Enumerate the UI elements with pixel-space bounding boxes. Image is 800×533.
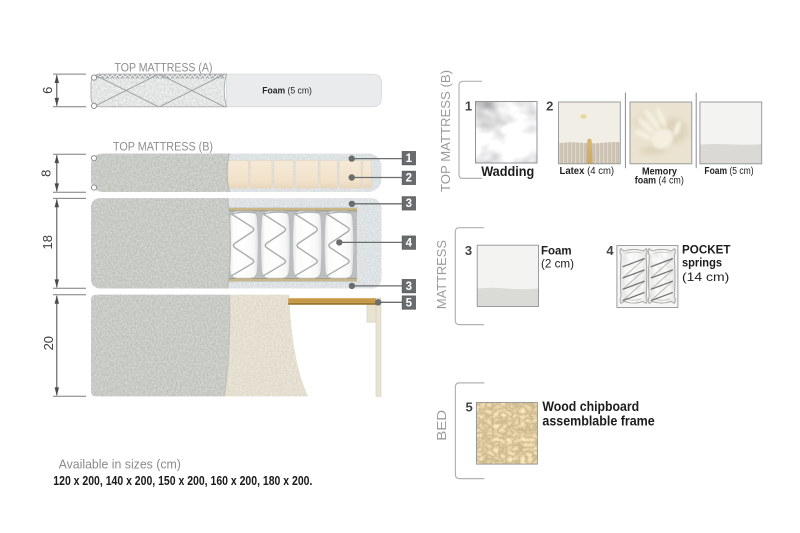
- svg-text:TOP MATTRESS (A): TOP MATTRESS (A): [115, 61, 213, 75]
- svg-text:18: 18: [40, 235, 55, 249]
- svg-text:Foam: Foam: [541, 244, 572, 258]
- svg-text:120 x 200, 140 x 200, 150 x 20: 120 x 200, 140 x 200, 150 x 200, 160 x 2…: [53, 473, 312, 488]
- svg-text:Latex (4 cm): Latex (4 cm): [560, 166, 615, 177]
- svg-text:MATTRESS: MATTRESS: [435, 240, 449, 309]
- svg-text:(2 cm): (2 cm): [541, 256, 574, 270]
- svg-text:3: 3: [406, 198, 412, 210]
- svg-text:8: 8: [38, 170, 53, 177]
- svg-text:6: 6: [40, 87, 55, 94]
- svg-text:4: 4: [606, 243, 614, 258]
- svg-text:Foam (5 cm): Foam (5 cm): [704, 166, 753, 177]
- svg-text:Available in sizes (cm): Available in sizes (cm): [59, 457, 181, 471]
- svg-text:3: 3: [406, 281, 412, 293]
- svg-text:springs: springs: [682, 255, 722, 269]
- svg-text:Wadding: Wadding: [481, 164, 534, 179]
- svg-text:2: 2: [546, 99, 553, 114]
- svg-text:assemblable frame: assemblable frame: [542, 413, 654, 428]
- svg-text:5: 5: [406, 297, 413, 309]
- svg-text:BED: BED: [435, 410, 449, 441]
- svg-text:20: 20: [41, 336, 56, 350]
- svg-text:(14 cm): (14 cm): [682, 270, 729, 284]
- svg-text:2: 2: [406, 173, 412, 185]
- svg-text:1: 1: [465, 99, 472, 114]
- svg-text:5: 5: [465, 400, 472, 415]
- svg-text:foam (4 cm): foam (4 cm): [635, 176, 684, 187]
- svg-text:TOP MATTRESS (B): TOP MATTRESS (B): [439, 70, 453, 192]
- svg-text:3: 3: [465, 243, 472, 258]
- svg-text:4: 4: [406, 237, 413, 249]
- svg-text:1: 1: [406, 153, 413, 165]
- svg-text:Wood chipboard: Wood chipboard: [542, 399, 639, 414]
- svg-text:Foam (5 cm): Foam (5 cm): [262, 86, 312, 97]
- svg-text:TOP MATTRESS (B): TOP MATTRESS (B): [113, 139, 213, 153]
